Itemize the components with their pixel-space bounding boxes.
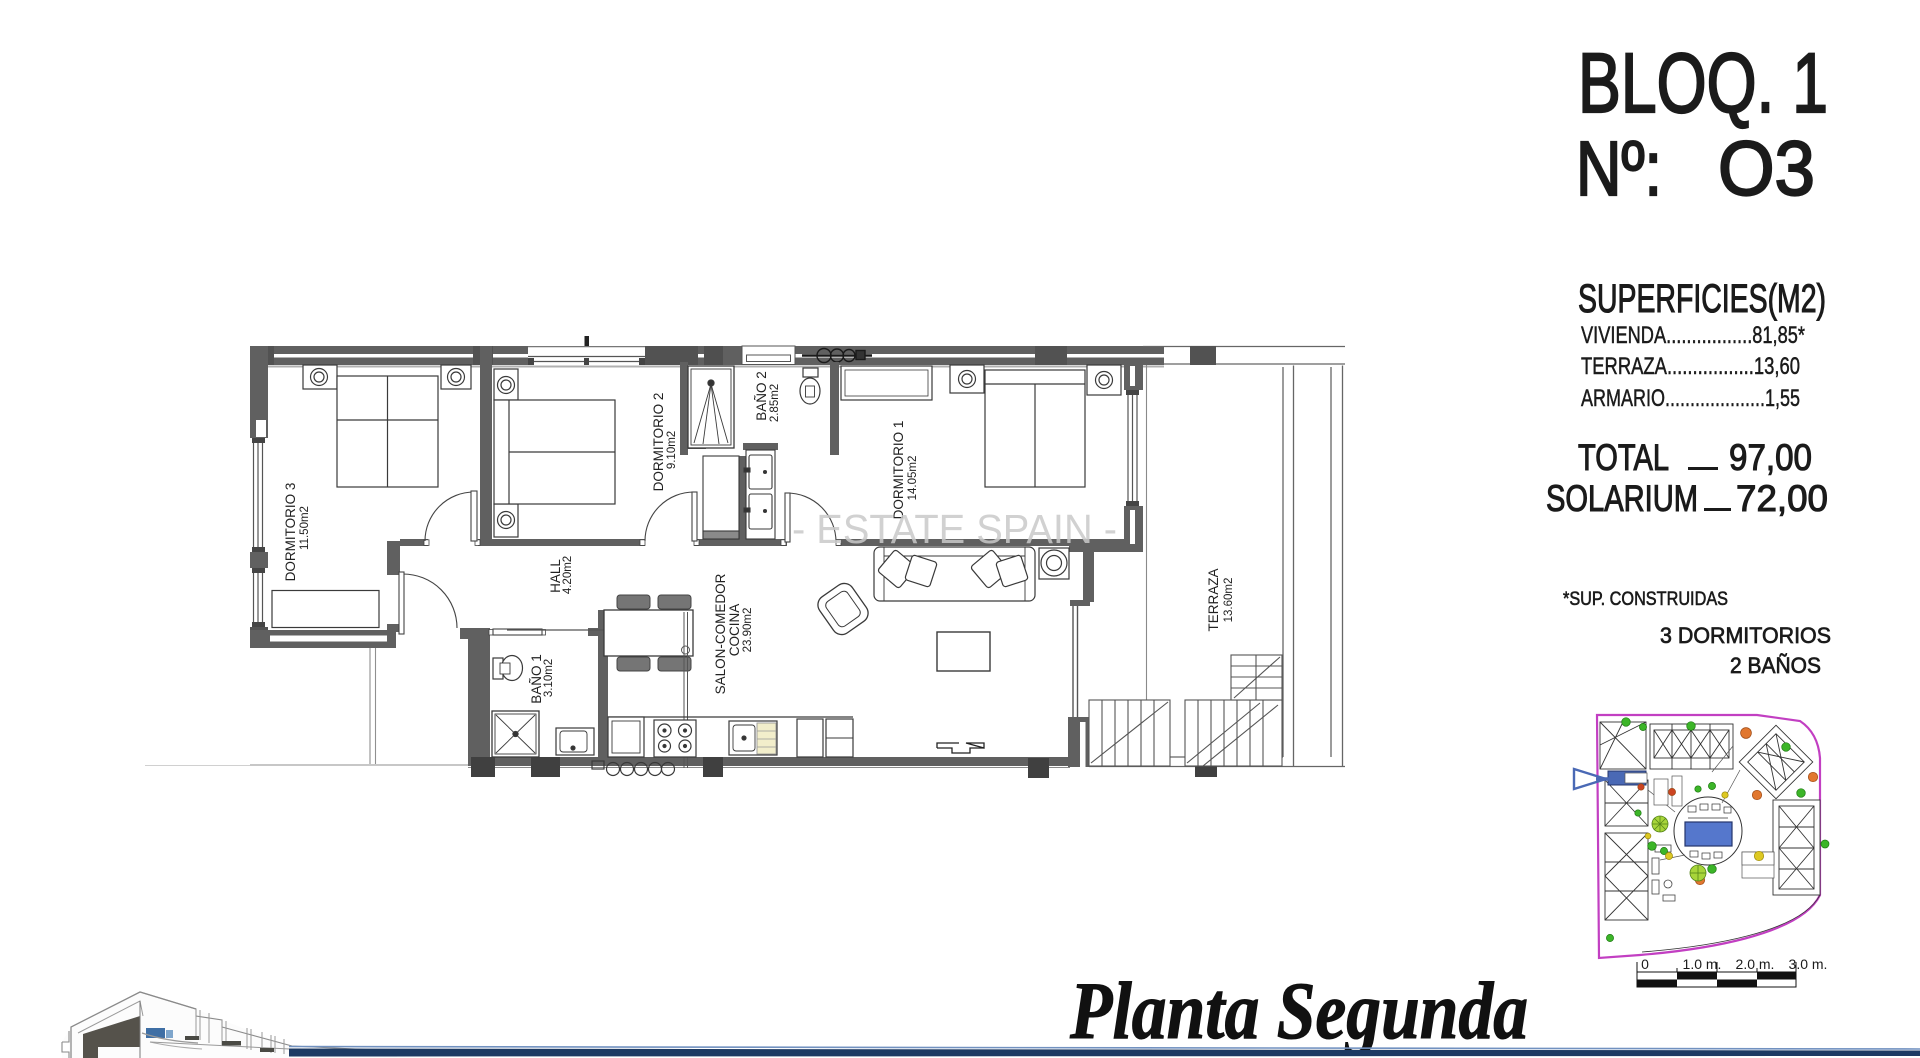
svg-text:O3: O3 [1718,126,1815,212]
svg-text:- ESTATE SPAIN -: - ESTATE SPAIN - [792,506,1117,552]
svg-text:2.85m2: 2.85m2 [769,384,781,422]
svg-text:9.10m2: 9.10m2 [666,431,678,469]
svg-text:TERRAZA.................13,60: TERRAZA.................13,60 [1581,353,1800,380]
svg-text:COCINA: COCINA [727,604,742,657]
svg-text:Nº:: Nº: [1576,126,1662,212]
svg-text:TERRAZA: TERRAZA [1206,568,1221,631]
svg-text:97,00: 97,00 [1729,437,1812,478]
svg-text:SALON-COMEDOR: SALON-COMEDOR [713,573,728,694]
svg-text:2.0 m.: 2.0 m. [1736,956,1775,972]
svg-text:11.50m2: 11.50m2 [299,506,311,550]
svg-text:BAÑO 2: BAÑO 2 [754,371,769,421]
svg-text:*SUP. CONSTRUIDAS: *SUP. CONSTRUIDAS [1563,589,1728,610]
svg-text:14.05m2: 14.05m2 [907,456,919,501]
svg-text:ARMARIO....................1,5: ARMARIO....................1,55 [1581,385,1800,412]
svg-text:3.0 m.: 3.0 m. [1789,956,1828,972]
svg-text:72,00: 72,00 [1736,478,1828,519]
svg-text:2 BAÑOS: 2 BAÑOS [1730,653,1821,678]
svg-text:DORMITORIO 2: DORMITORIO 2 [651,393,666,492]
svg-text:23.90m2: 23.90m2 [742,608,754,653]
svg-text:HALL: HALL [548,559,563,593]
svg-text:SUPERFICIES(M2): SUPERFICIES(M2) [1578,277,1826,321]
svg-text:1.0 m.: 1.0 m. [1683,956,1722,972]
svg-text:13.60m2: 13.60m2 [1223,578,1235,623]
svg-text:0: 0 [1641,956,1649,972]
svg-text:Planta Segunda: Planta Segunda [1069,965,1528,1056]
svg-text:3.10m2: 3.10m2 [543,659,555,697]
svg-text:TOTAL: TOTAL [1578,437,1669,478]
svg-text:BAÑO 1: BAÑO 1 [529,654,544,704]
svg-text:DORMITORIO 3: DORMITORIO 3 [283,483,298,582]
svg-text:BLOQ. 1: BLOQ. 1 [1578,36,1828,130]
svg-text:DORMITORIO 1: DORMITORIO 1 [891,421,906,520]
svg-text:SOLARIUM: SOLARIUM [1546,478,1698,519]
svg-text:VIVIENDA.................81,85: VIVIENDA.................81,85* [1581,322,1805,349]
svg-text:3 DORMITORIOS: 3 DORMITORIOS [1660,623,1831,648]
svg-text:4.20m2: 4.20m2 [562,556,574,594]
